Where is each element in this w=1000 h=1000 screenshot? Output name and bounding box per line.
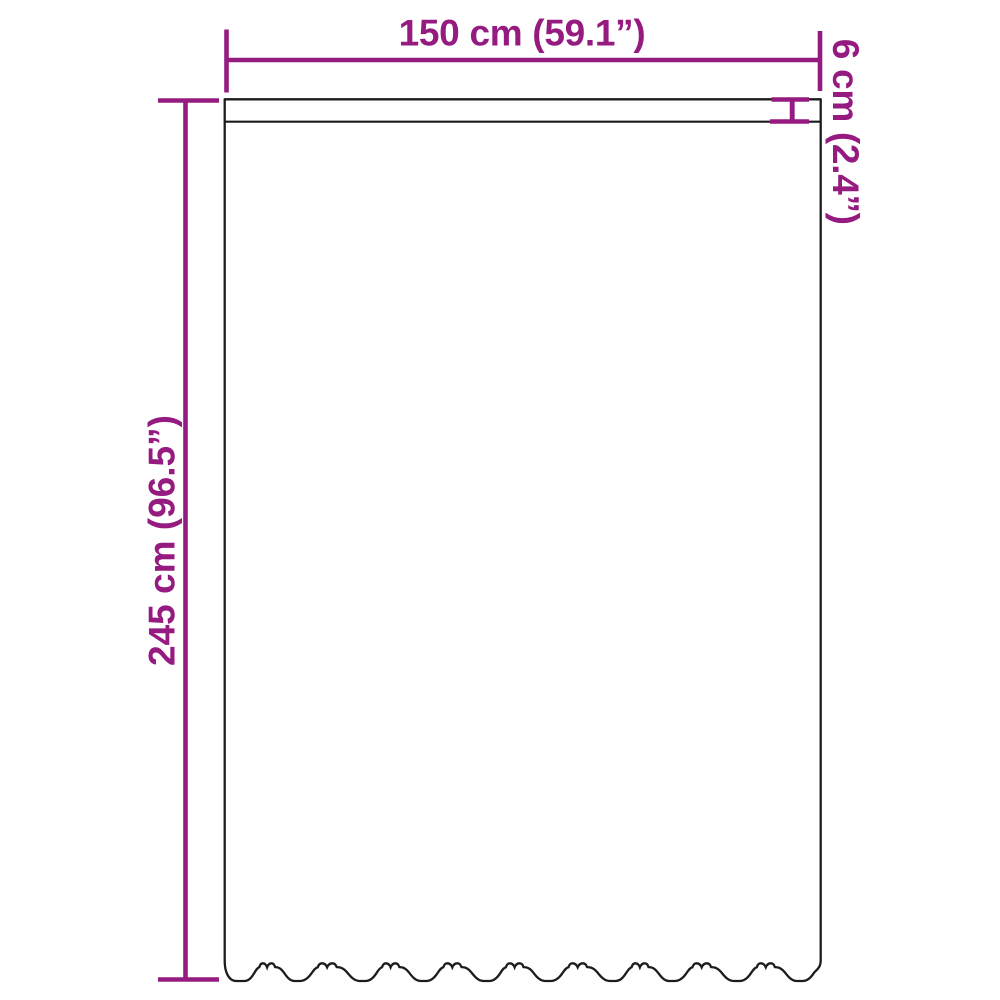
svg-text:150 cm (59.1”): 150 cm (59.1”) [399, 13, 646, 54]
svg-text:6 cm (2.4”): 6 cm (2.4”) [825, 39, 866, 225]
svg-text:245 cm (96.5”): 245 cm (96.5”) [142, 415, 183, 666]
